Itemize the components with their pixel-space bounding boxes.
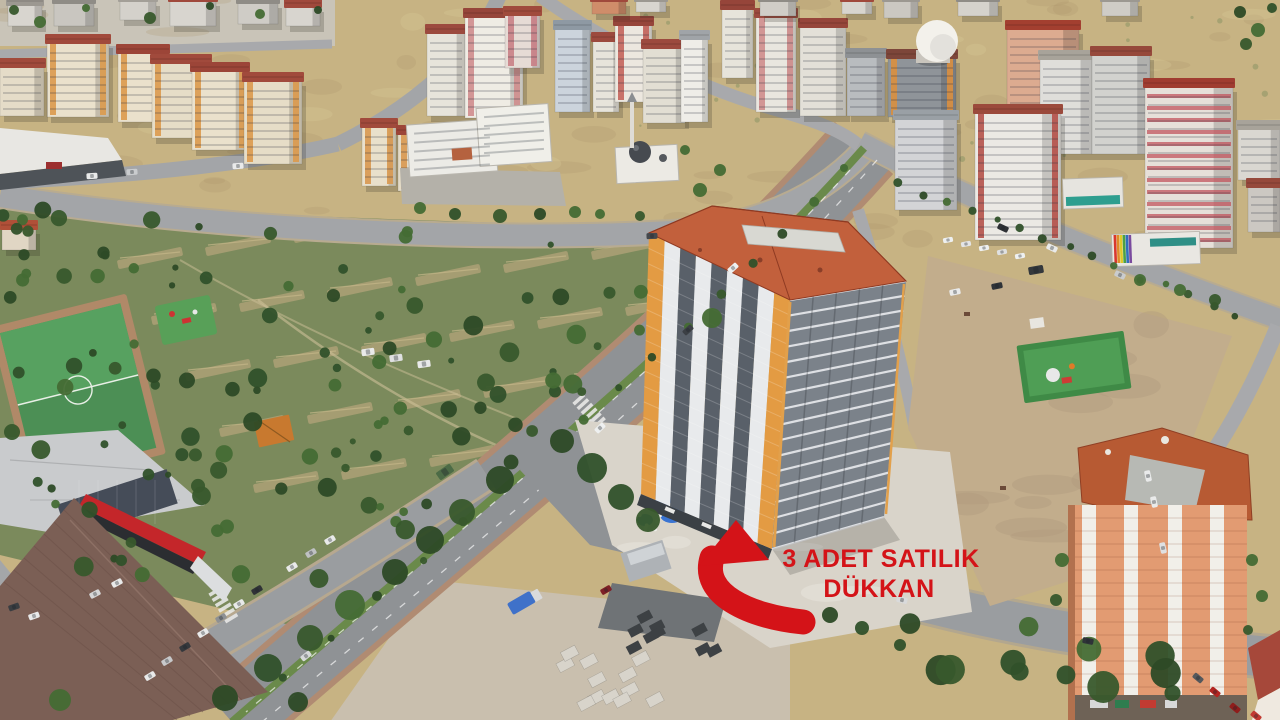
tree [329,379,342,392]
tree [51,210,67,226]
apartment-tower [0,58,48,122]
tree [328,635,335,642]
apartment-tower [798,18,850,122]
tree [1038,234,1047,243]
tree [129,339,138,348]
tree [463,316,483,336]
apartment-tower [590,0,630,20]
tree [579,415,589,425]
tree [22,226,33,237]
tree [34,202,51,219]
tree [1246,554,1258,566]
tree [1240,38,1252,50]
tree [1088,251,1097,260]
apartment-tower [720,0,757,84]
tree [534,208,546,220]
tree [361,497,378,514]
tree [255,9,265,19]
tree [220,519,234,533]
tree [135,567,150,582]
tree [893,178,902,187]
tree [702,308,722,328]
tree [331,447,341,457]
tree [1267,3,1277,13]
tree [1174,284,1186,296]
tree [172,265,178,271]
tree [89,349,97,357]
apartment-tower [754,8,800,118]
tree [144,12,156,24]
tree [714,164,726,176]
tree [126,537,137,548]
tree [1163,281,1169,287]
tree [634,285,648,299]
tree [341,464,349,472]
tree [1209,294,1221,306]
tree [283,281,293,291]
tree [809,197,819,207]
tree [143,469,155,481]
tree [508,417,523,432]
tree [74,557,94,577]
tree [320,347,330,357]
apartment-tower [52,0,98,32]
tree [522,292,534,304]
tree [1019,617,1038,636]
apartment-tower [284,0,324,32]
tree [264,227,277,240]
tree [18,249,29,260]
tree [382,559,408,585]
apartment-tower [882,0,922,24]
tree [680,145,690,155]
tree [275,482,287,494]
tree [90,269,104,283]
tree [216,445,233,462]
tree [426,331,442,347]
tree [608,484,634,510]
tree [11,223,23,235]
tree [493,209,507,223]
tree [143,211,160,228]
tree [129,263,139,273]
tree [262,308,278,324]
tree [449,499,475,525]
tree [47,484,55,492]
tree [900,613,921,634]
tree [200,271,213,284]
apartment-tower [1246,178,1280,238]
aerial-drone-photo: 3 ADET SATILIK DÜKKAN [0,0,1280,720]
apartment-tower [1143,78,1237,254]
tree [840,164,848,172]
tree [374,420,383,429]
tree [181,427,199,445]
tree [1256,590,1268,602]
tree [314,6,322,14]
tree [97,246,109,258]
tree [855,621,869,635]
tree [968,207,976,215]
tree [406,297,423,314]
tree [169,282,175,288]
tree [372,355,386,369]
tree [594,342,602,350]
tree [327,289,340,302]
tree [49,689,71,711]
apartment-tower [553,20,594,118]
tree [1243,625,1253,635]
tree [919,192,927,200]
tree [57,379,74,396]
tree [449,208,461,220]
tree [375,311,384,320]
tree [195,223,202,230]
tree [595,209,605,219]
tree [777,229,787,239]
tree [248,368,267,387]
apartment-tower [503,6,544,74]
tree [383,341,397,355]
tree [253,386,261,394]
car [232,163,243,170]
tree [414,202,426,214]
tree [636,508,660,532]
tree [365,327,372,334]
tree [1110,262,1117,269]
tree [225,382,240,397]
tree [490,386,507,403]
tree [822,607,838,623]
tree [394,401,407,414]
tree [577,387,586,396]
tree [372,591,382,601]
tree [302,448,318,464]
apartment-tower [758,0,800,22]
apartment-tower [956,0,1002,22]
tree [1050,594,1062,606]
tree [635,211,645,221]
tree [1057,666,1076,685]
tree [350,438,356,444]
tree [297,625,323,651]
tree [210,462,227,479]
tree [717,289,727,299]
apartment-tower [679,30,712,128]
tree [526,425,538,437]
tree [212,685,238,711]
tree [109,362,122,375]
tree [577,453,607,483]
tree [309,569,328,588]
tree [66,358,82,374]
tree [548,242,554,248]
tree [118,421,126,429]
apartment-tower [845,48,889,122]
tree [693,183,707,197]
car [86,173,97,180]
tree [1055,553,1069,567]
annotation-text-line2: DÜKKAN [823,574,934,603]
tree [1231,313,1238,320]
tree [335,590,365,620]
tree [4,424,20,440]
tree [995,217,1001,223]
tree [56,268,72,284]
apartment-tower [1100,0,1142,22]
tree [4,291,17,304]
tree [333,364,341,372]
tree [550,429,574,453]
tree [894,639,906,651]
tree [81,502,97,518]
tree [603,287,615,299]
tree [421,499,432,510]
tree [399,507,408,516]
tree [338,264,348,274]
car [126,169,137,176]
tree [567,325,586,344]
tree [1067,243,1074,250]
tree [420,557,427,564]
tree [398,286,406,294]
tree [13,367,25,379]
tree [1015,224,1023,232]
tree [504,455,519,470]
apartment-tower [1090,46,1154,160]
tree [21,269,31,279]
tree [500,342,520,362]
tree [545,372,561,388]
tree [749,259,758,268]
tree [179,372,195,388]
tree [192,486,211,505]
tree [165,472,171,478]
tree [206,2,214,10]
tree [288,692,308,712]
annotation-text-line1: 3 ADET SATILIK [782,545,979,573]
tree [648,353,656,361]
tree [1251,23,1265,37]
tree [416,526,444,554]
tree [569,206,581,218]
tree [243,412,262,431]
tree [9,5,19,15]
apartment-tower [242,72,306,170]
tree [634,325,645,336]
tree [1234,6,1246,18]
tree [51,500,60,509]
tree [404,426,414,436]
tree [452,427,470,445]
tree [486,466,514,494]
tree [1151,658,1181,688]
apartment-tower [893,110,961,216]
tree [440,401,456,417]
apartment-tower [425,24,469,122]
tree [936,655,965,684]
tree [33,477,43,487]
tree [615,384,622,391]
tree [175,448,188,461]
car [646,233,657,239]
tree [116,555,127,566]
apartment-tower [1236,120,1280,186]
tree [1087,671,1119,703]
tree [376,503,384,511]
tree [552,288,569,305]
tree [100,440,108,448]
tree [474,402,486,414]
tree [1000,650,1025,675]
tree [34,16,46,28]
tree [448,358,454,364]
tree [943,198,951,206]
apartment-tower [360,118,400,192]
tree [318,478,337,497]
tree [146,369,160,383]
aerial-scene: 3 ADET SATILIK DÜKKAN [0,0,1280,720]
tree [31,440,50,459]
tree [254,654,282,682]
tree [370,450,382,462]
tree [396,520,415,539]
main-building-under-construction [637,206,906,575]
tree [399,230,413,244]
tree [1134,274,1146,286]
apartment-tower [45,34,113,123]
tree [82,4,90,12]
tree [189,448,202,461]
tree [232,565,250,583]
